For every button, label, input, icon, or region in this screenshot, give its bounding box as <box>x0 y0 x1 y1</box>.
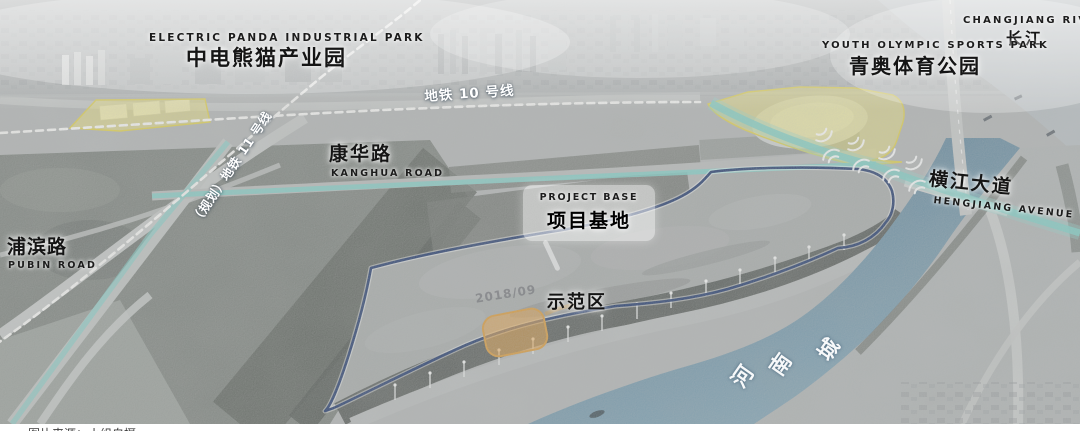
bottom-margin <box>0 424 1080 431</box>
label-sports-park-zh: 青奥体育公园 <box>849 56 981 76</box>
photo-caption: 图片来源：小组自摄 <box>28 425 136 431</box>
aerial-site-map: ELECTRIC PANDA INDUSTRIAL PARK 中电熊猫产业园 C… <box>0 0 1080 431</box>
label-project-base-en: PROJECT BASE <box>523 192 655 203</box>
label-kanghua-road-zh: 康华路 <box>329 145 392 164</box>
label-project-base-zh: 项目基地 <box>523 206 655 233</box>
label-sports-park-en: YOUTH OLYMPIC SPORTS PARK <box>822 41 1049 51</box>
label-industrial-park-zh: 中电熊猫产业园 <box>186 48 347 69</box>
label-demo-zone: 示范区 <box>547 294 607 312</box>
label-industrial-park-en: ELECTRIC PANDA INDUSTRIAL PARK <box>149 33 425 44</box>
label-changjiang-river-en: CHANGJIANG RIVER <box>963 16 1080 26</box>
label-kanghua-road-en: KANGHUA ROAD <box>331 169 444 179</box>
label-pubin-road-en: PUBIN ROAD <box>8 261 97 271</box>
project-base-callout: PROJECT BASE 项目基地 <box>523 185 655 241</box>
label-pubin-road-zh: 浦滨路 <box>7 238 67 257</box>
